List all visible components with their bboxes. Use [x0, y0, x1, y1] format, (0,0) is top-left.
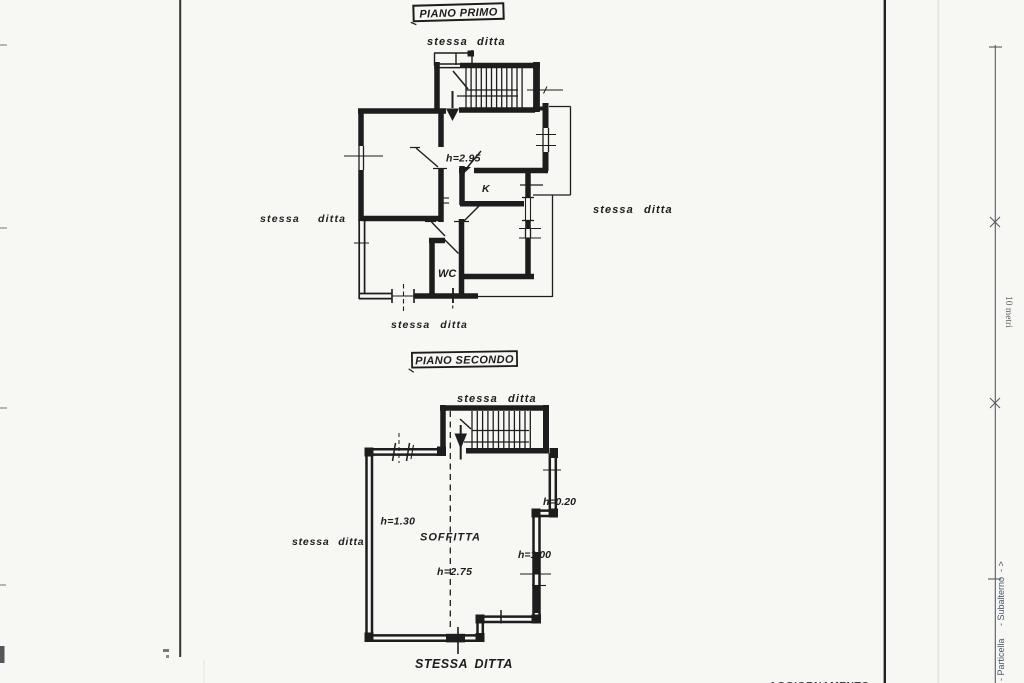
svg-text:h=1.00: h=1.00: [518, 549, 551, 561]
svg-text:PIANO SECONDO: PIANO SECONDO: [415, 354, 514, 368]
svg-text:10 metri: 10 metri: [1003, 296, 1013, 328]
svg-text:stessa ditta: stessa ditta: [292, 536, 364, 548]
svg-text:stessa ditta: stessa ditta: [260, 213, 346, 225]
svg-text:PIANO PRIMO: PIANO PRIMO: [419, 6, 498, 20]
svg-text:WC: WC: [438, 268, 457, 280]
svg-text:h=1.30: h=1.30: [381, 516, 416, 528]
svg-text:stessa ditta: stessa ditta: [427, 36, 506, 48]
svg-text:h=2.95: h=2.95: [446, 153, 481, 165]
svg-text:h=0.20: h=0.20: [543, 496, 576, 508]
svg-text:SOFFITTA: SOFFITTA: [420, 532, 481, 544]
svg-text:stessa ditta: stessa ditta: [391, 319, 468, 331]
svg-text:stessa ditta: stessa ditta: [457, 393, 537, 405]
svg-text:- Particella - Subalterno: - Particella - Subalterno - >: [996, 561, 1006, 681]
svg-text:stessa ditta: stessa ditta: [593, 204, 673, 216]
svg-text:h=2.75: h=2.75: [437, 566, 472, 578]
svg-text:STESSA DITTA: STESSA DITTA: [415, 657, 513, 671]
